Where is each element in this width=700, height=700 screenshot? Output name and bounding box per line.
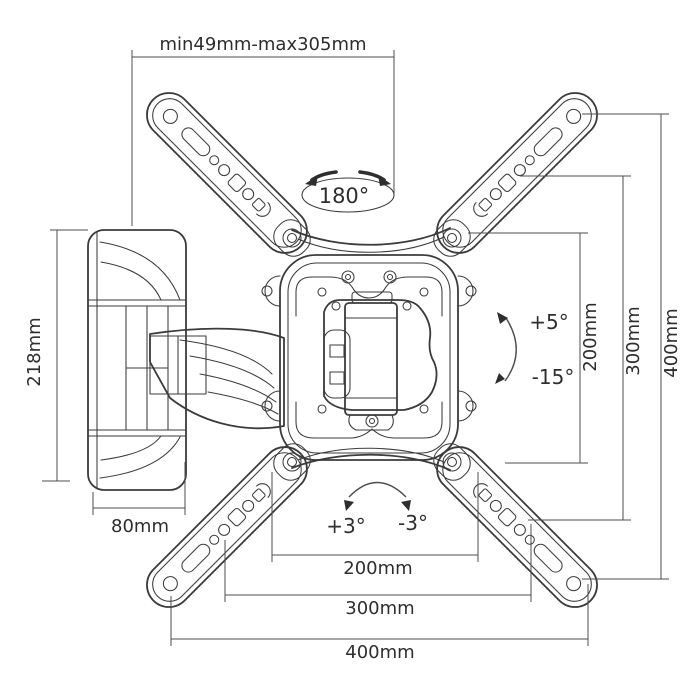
- tv-mount-diagram: min49mm-max305mm 218mm 80mm 200mm 300mm: [0, 0, 700, 700]
- technical-diagram-page: min49mm-max305mm 218mm 80mm 200mm 300mm: [0, 0, 700, 700]
- swivel-angle-label: 180°: [319, 184, 370, 208]
- tilt-down-label: -15°: [532, 365, 575, 389]
- vesa-horizontal-300-label: 300mm: [345, 598, 414, 619]
- vesa-vertical-200-label: 200mm: [580, 302, 601, 371]
- vesa-horizontal-200-label: 200mm: [343, 558, 412, 579]
- vesa-vertical-400-label: 400mm: [661, 308, 682, 377]
- dim-vesa-horizontal-400: 400mm: [171, 584, 588, 663]
- vesa-arm-bottom-right: [424, 434, 606, 616]
- dim-vesa-vertical-200: 200mm: [468, 233, 601, 463]
- vesa-arm-top-left: [138, 84, 320, 266]
- angle-rotation: +3° -3°: [326, 483, 428, 539]
- vesa-horizontal-400-label: 400mm: [345, 642, 414, 663]
- angle-swivel: 180°: [302, 172, 394, 212]
- angle-tilt: +5° -15°: [495, 310, 574, 389]
- articulated-arm: [150, 329, 284, 429]
- dim-wall-plate-depth: 80mm: [93, 462, 185, 537]
- tilt-up-label: +5°: [529, 310, 568, 334]
- wall-bracket-side-view: [88, 230, 186, 490]
- rotate-plus-label: +3°: [326, 514, 365, 538]
- vesa-vertical-300-label: 300mm: [623, 306, 644, 375]
- rotate-minus-label: -3°: [398, 511, 428, 535]
- wall-plate-depth-label: 80mm: [111, 516, 169, 537]
- bracket-height-label: 218mm: [24, 317, 45, 386]
- extension-range-label: min49mm-max305mm: [159, 34, 366, 55]
- vesa-arm-top-right: [424, 84, 606, 266]
- top-strap: [292, 228, 450, 252]
- dim-bracket-height: 218mm: [24, 230, 88, 481]
- vesa-plate: [262, 255, 476, 460]
